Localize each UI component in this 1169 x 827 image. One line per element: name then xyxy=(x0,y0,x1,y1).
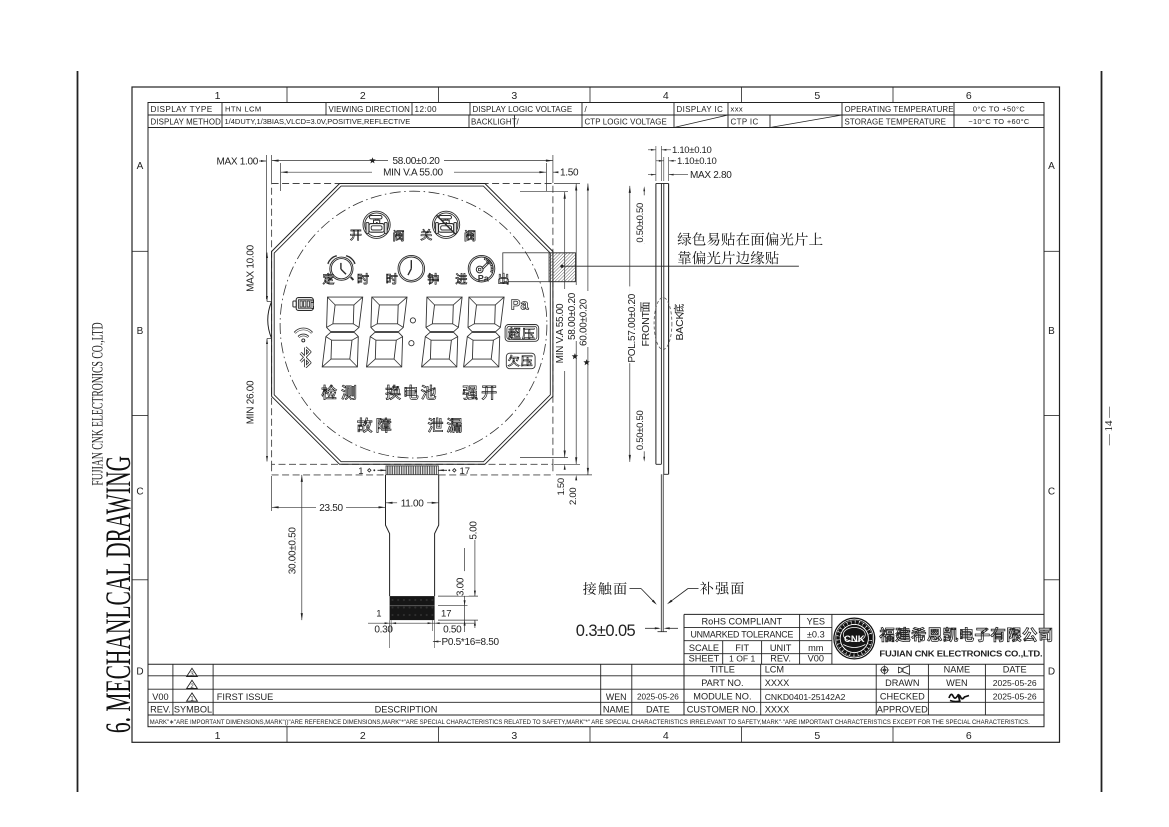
svg-text:MAX 1.00: MAX 1.00 xyxy=(216,156,258,167)
svg-text:B: B xyxy=(1048,326,1055,337)
svg-text:0.50±0.50: 0.50±0.50 xyxy=(635,411,646,451)
svg-text:3.00: 3.00 xyxy=(455,577,466,596)
svg-text:MAX 10.00: MAX 10.00 xyxy=(246,244,257,292)
svg-text:1.10±0.10: 1.10±0.10 xyxy=(672,145,712,156)
svg-text:1.50: 1.50 xyxy=(560,168,579,179)
svg-text:HTN LCM: HTN LCM xyxy=(225,105,262,114)
svg-text:17: 17 xyxy=(441,609,452,620)
svg-text:FIT: FIT xyxy=(735,643,749,653)
svg-text:mm: mm xyxy=(808,643,824,653)
svg-text:UNMARKED TOLERANCE: UNMARKED TOLERANCE xyxy=(690,630,793,640)
svg-text:xxx: xxx xyxy=(731,105,744,114)
svg-text:0.50: 0.50 xyxy=(443,625,462,636)
svg-text:MIN 26.00: MIN 26.00 xyxy=(246,380,257,424)
svg-text:58.00±0.20: 58.00±0.20 xyxy=(567,292,578,340)
svg-text:P0.5*16=8.50: P0.5*16=8.50 xyxy=(442,637,500,648)
svg-text:FUJIAN CNK ELECTRONICS CO.,LTD: FUJIAN CNK ELECTRONICS CO.,LTD. xyxy=(879,648,1042,658)
svg-text:0°C TO +50°C: 0°C TO +50°C xyxy=(973,105,1025,114)
svg-text:YES: YES xyxy=(807,616,825,626)
svg-text:C: C xyxy=(136,487,143,498)
svg-text:1.50: 1.50 xyxy=(556,478,567,495)
svg-text:SCALE: SCALE xyxy=(689,643,719,653)
svg-text:3: 3 xyxy=(511,90,517,102)
svg-text:17: 17 xyxy=(460,466,471,477)
svg-text:LCM: LCM xyxy=(765,665,784,675)
svg-text:1/4DUTY,1/3BIAS,VLCD=3.0V,POSI: 1/4DUTY,1/3BIAS,VLCD=3.0V,POSITIVE,REFLE… xyxy=(225,117,411,126)
svg-text:1: 1 xyxy=(215,730,221,742)
svg-text:SHEET: SHEET xyxy=(689,654,720,664)
svg-text:BACK: BACK xyxy=(674,313,686,341)
svg-text:60.00±0.20: 60.00±0.20 xyxy=(579,298,590,346)
svg-text:1: 1 xyxy=(376,609,381,620)
svg-text:2025-05-26: 2025-05-26 xyxy=(993,691,1037,701)
svg-text:WEN: WEN xyxy=(946,678,967,688)
svg-text:DISPLAY LOGIC VOLTAGE: DISPLAY LOGIC VOLTAGE xyxy=(473,105,573,114)
svg-text:A: A xyxy=(1048,161,1055,172)
svg-text:2025-05-26: 2025-05-26 xyxy=(993,678,1037,688)
svg-text:D: D xyxy=(136,667,143,678)
svg-text:2: 2 xyxy=(360,90,366,102)
svg-text:CNK: CNK xyxy=(844,634,865,645)
svg-text:DISPLAY IC: DISPLAY IC xyxy=(677,105,724,114)
svg-text:3: 3 xyxy=(511,730,517,742)
svg-text:4: 4 xyxy=(663,730,669,742)
svg-text:— 14 —: — 14 — xyxy=(1103,406,1115,447)
svg-text:PART NO.: PART NO. xyxy=(701,678,743,688)
svg-text:APPROVED: APPROVED xyxy=(877,704,928,714)
svg-text:Pa: Pa xyxy=(478,273,490,283)
svg-text:DISPLAY TYPE: DISPLAY TYPE xyxy=(151,105,213,114)
svg-text:11.00: 11.00 xyxy=(401,498,425,509)
svg-text:REV.: REV. xyxy=(770,654,791,664)
svg-text:1 OF 1: 1 OF 1 xyxy=(729,654,755,664)
svg-text:CUSTOMER NO.: CUSTOMER NO. xyxy=(687,704,758,714)
svg-text:/: / xyxy=(517,118,520,127)
svg-text:CTP IC: CTP IC xyxy=(731,118,759,127)
svg-text:12:00: 12:00 xyxy=(415,105,438,114)
svg-text:MARK"∗"ARE IMPORTANT DIMENSI: MARK"∗"ARE IMPORTANT DIMENSIONS,MARK"()"… xyxy=(150,719,1030,726)
svg-text:TITLE: TITLE xyxy=(710,665,735,675)
svg-text:2025-05-26: 2025-05-26 xyxy=(637,693,679,702)
svg-text:WEN: WEN xyxy=(606,692,627,702)
svg-text:CNKD0401-25142A2: CNKD0401-25142A2 xyxy=(765,692,846,702)
svg-text:5: 5 xyxy=(814,730,820,742)
svg-text:DATE: DATE xyxy=(1003,665,1027,675)
svg-text:MAX 2.80: MAX 2.80 xyxy=(690,170,732,181)
svg-text:XXXX: XXXX xyxy=(765,678,790,688)
svg-text:MIN V.A 55.00: MIN V.A 55.00 xyxy=(555,303,566,363)
svg-text:DRAWN: DRAWN xyxy=(885,678,919,688)
svg-text:1: 1 xyxy=(215,90,221,102)
svg-text:/: / xyxy=(585,105,588,114)
svg-text:1: 1 xyxy=(358,466,363,477)
svg-text:UNIT: UNIT xyxy=(770,643,792,653)
svg-text:0.30: 0.30 xyxy=(374,625,393,636)
svg-text:5: 5 xyxy=(814,90,820,102)
svg-text:REV.: REV. xyxy=(150,705,171,715)
svg-text:B: B xyxy=(137,326,144,337)
svg-text:NAME: NAME xyxy=(944,665,971,675)
svg-text:2: 2 xyxy=(360,730,366,742)
svg-text:V00: V00 xyxy=(808,654,824,664)
svg-text:V00: V00 xyxy=(152,692,168,702)
svg-text:BACKLIGHT: BACKLIGHT xyxy=(471,118,517,127)
svg-text:2.00: 2.00 xyxy=(568,488,579,505)
svg-text:6: 6 xyxy=(966,90,972,102)
svg-text:FRONT: FRONT xyxy=(640,311,652,347)
svg-text:0.3±0.05: 0.3±0.05 xyxy=(576,622,636,640)
svg-text:−10°C TO +60°C: −10°C TO +60°C xyxy=(968,117,1030,126)
svg-text:DATE: DATE xyxy=(646,705,670,715)
svg-text:6: 6 xyxy=(966,730,972,742)
svg-text:C: C xyxy=(1048,487,1055,498)
svg-text:XXXX: XXXX xyxy=(765,704,790,714)
svg-text:POL.57.00±0.20: POL.57.00±0.20 xyxy=(627,293,638,362)
svg-text:0.50±0.50: 0.50±0.50 xyxy=(635,203,646,243)
svg-text:D: D xyxy=(1048,667,1055,678)
svg-text:FIRST ISSUE: FIRST ISSUE xyxy=(217,692,273,702)
svg-text:Pa: Pa xyxy=(511,298,530,314)
svg-text:SYMBOL: SYMBOL xyxy=(174,705,212,715)
svg-text:VIEWING DIRECTION: VIEWING DIRECTION xyxy=(329,105,411,114)
svg-text:±0.3: ±0.3 xyxy=(807,630,825,640)
svg-text:4: 4 xyxy=(663,90,669,102)
svg-text:A: A xyxy=(137,161,144,172)
svg-text:NAME: NAME xyxy=(603,705,630,715)
svg-text:1.10±0.10: 1.10±0.10 xyxy=(677,156,717,167)
svg-text:STORAGE TEMPERATURE: STORAGE TEMPERATURE xyxy=(845,118,946,127)
svg-text:CTP LOGIC VOLTAGE: CTP LOGIC VOLTAGE xyxy=(585,118,667,127)
svg-text:DISPLAY METHOD: DISPLAY METHOD xyxy=(151,118,222,127)
svg-text:OPERATING TEMPERATURE: OPERATING TEMPERATURE xyxy=(845,105,954,114)
svg-text:RoHS COMPLIANT: RoHS COMPLIANT xyxy=(701,616,782,626)
svg-text:MIN V.A 55.00: MIN V.A 55.00 xyxy=(383,168,443,179)
svg-text:30.00±0.50: 30.00±0.50 xyxy=(288,527,299,575)
svg-text:DESCRIPTION: DESCRIPTION xyxy=(375,705,438,715)
svg-text:6. MECHANLCAL DRAWING: 6. MECHANLCAL DRAWING xyxy=(100,456,139,733)
svg-text:MODULE NO.: MODULE NO. xyxy=(693,691,751,701)
svg-text:23.50: 23.50 xyxy=(319,503,343,514)
svg-text:CHECKED: CHECKED xyxy=(880,691,925,701)
svg-text:5.00: 5.00 xyxy=(468,521,479,540)
